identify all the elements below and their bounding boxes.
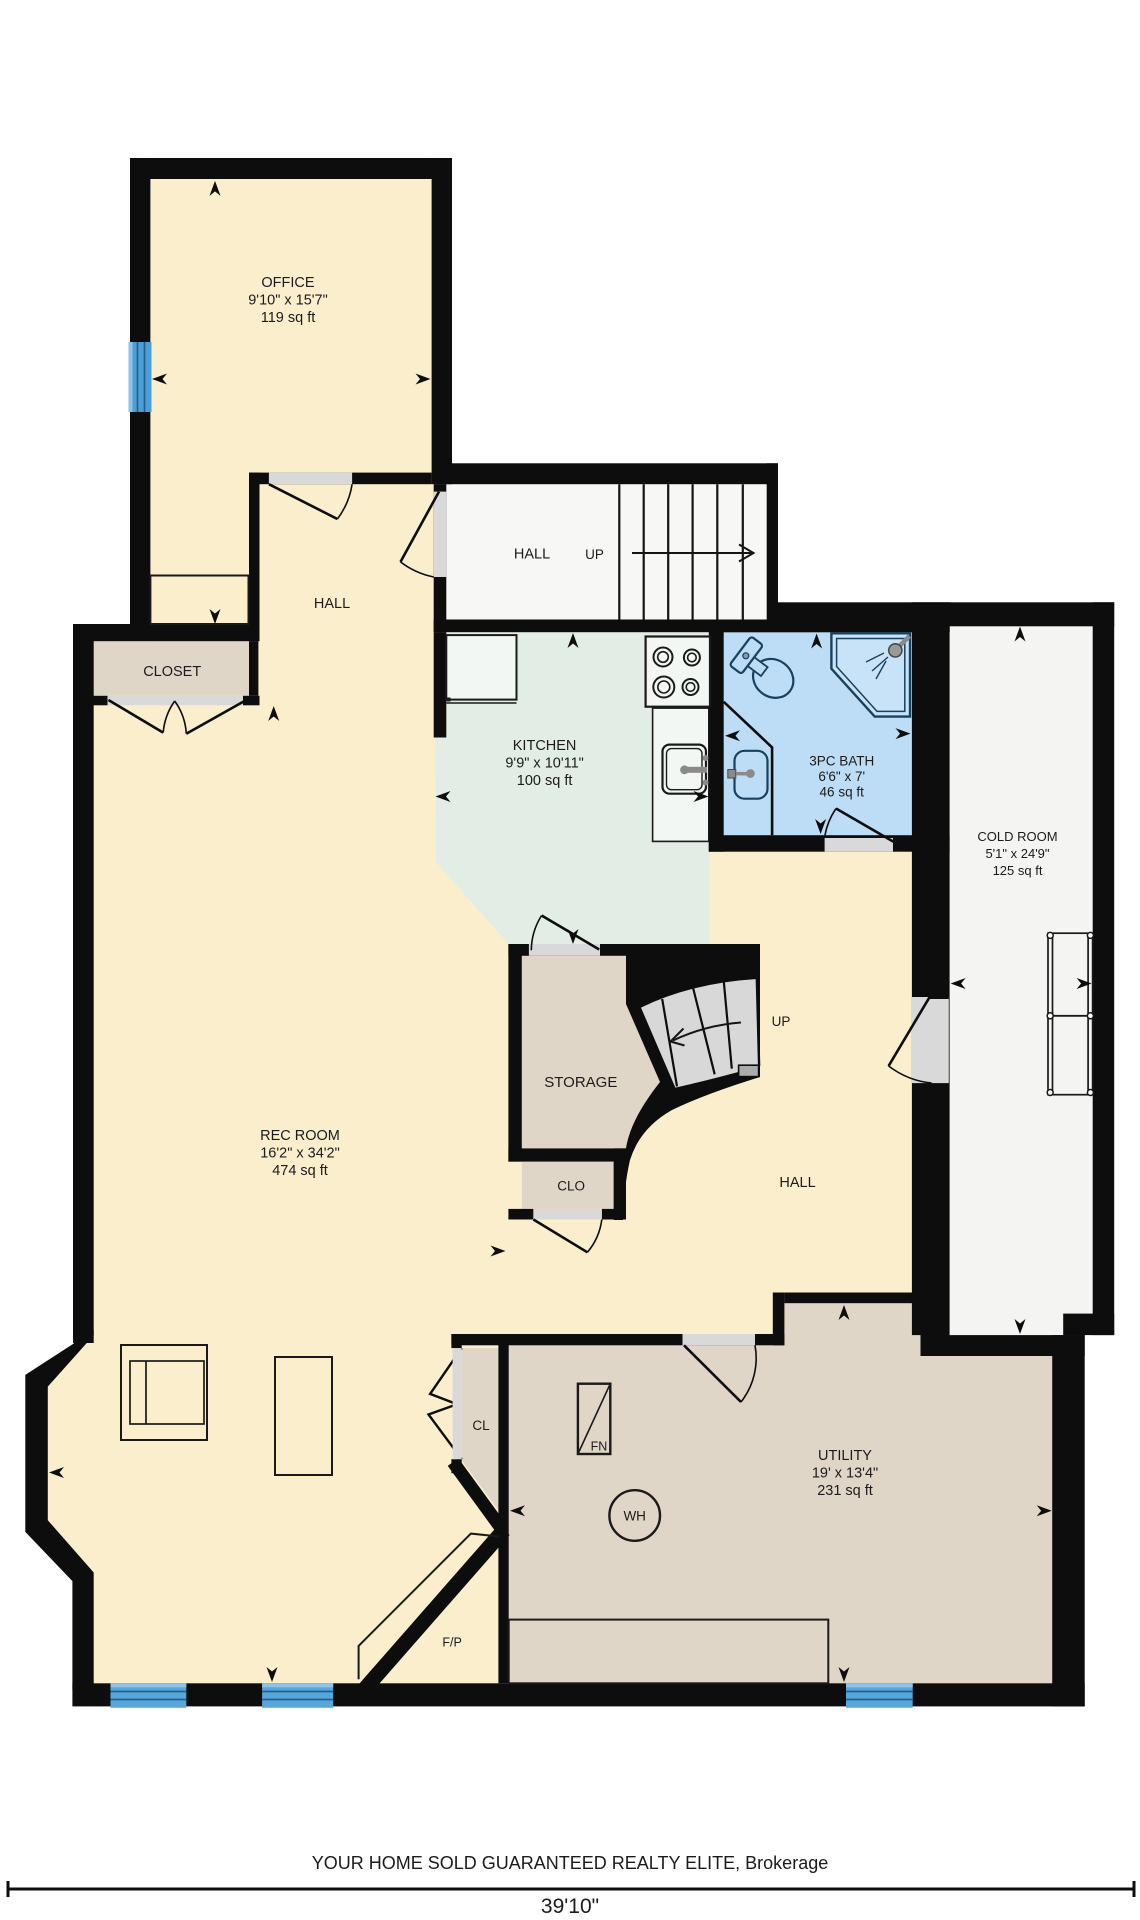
svg-text:UP: UP — [772, 1014, 791, 1029]
svg-text:46 sq ft: 46 sq ft — [820, 785, 865, 800]
svg-text:COLD ROOM: COLD ROOM — [977, 829, 1057, 844]
svg-text:9'9" x 10'11": 9'9" x 10'11" — [505, 756, 583, 772]
svg-text:HALL: HALL — [314, 596, 350, 612]
svg-text:HALL: HALL — [514, 547, 550, 563]
svg-text:UTILITY: UTILITY — [818, 1448, 872, 1464]
svg-text:YOUR HOME SOLD GUARANTEED REAL: YOUR HOME SOLD GUARANTEED REALTY ELITE, … — [312, 1853, 828, 1873]
svg-text:19' x 13'4": 19' x 13'4" — [812, 1466, 878, 1482]
svg-text:6'6" x 7': 6'6" x 7' — [818, 769, 865, 784]
svg-text:125 sq ft: 125 sq ft — [993, 863, 1043, 878]
svg-text:231 sq ft: 231 sq ft — [817, 1483, 873, 1499]
svg-text:CL: CL — [472, 1418, 490, 1433]
svg-text:WH: WH — [623, 1509, 646, 1524]
svg-text:REC ROOM: REC ROOM — [260, 1128, 340, 1144]
svg-text:119 sq ft: 119 sq ft — [261, 310, 316, 326]
svg-text:CLOSET: CLOSET — [143, 664, 201, 680]
svg-text:5'1" x 24'9": 5'1" x 24'9" — [985, 846, 1049, 861]
svg-text:UP: UP — [585, 547, 604, 562]
svg-text:474 sq ft: 474 sq ft — [272, 1163, 328, 1179]
svg-text:16'2" x 34'2": 16'2" x 34'2" — [260, 1146, 340, 1162]
svg-text:9'10" x 15'7": 9'10" x 15'7" — [248, 293, 328, 309]
svg-text:39'10": 39'10" — [541, 1895, 599, 1918]
svg-text:OFFICE: OFFICE — [261, 275, 314, 291]
svg-text:STORAGE: STORAGE — [544, 1074, 617, 1091]
svg-text:CLO: CLO — [557, 1179, 585, 1194]
svg-text:HALL: HALL — [779, 1175, 815, 1191]
svg-text:FN: FN — [591, 1440, 608, 1454]
svg-text:3PC BATH: 3PC BATH — [809, 754, 874, 769]
svg-text:KITCHEN: KITCHEN — [513, 738, 577, 754]
svg-text:F/P: F/P — [442, 1636, 461, 1650]
svg-text:100 sq ft: 100 sq ft — [517, 773, 573, 789]
